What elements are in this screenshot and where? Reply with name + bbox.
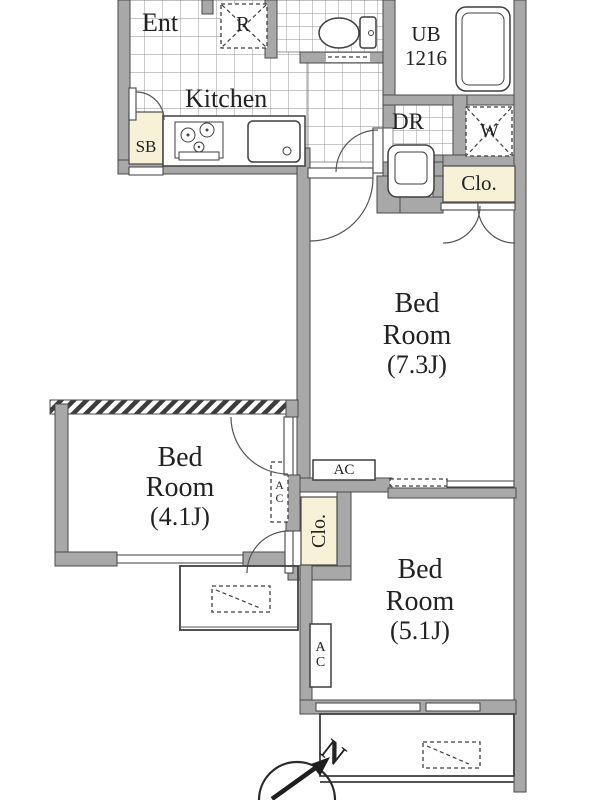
wall-segment [433, 155, 515, 167]
washbasin-inner [395, 152, 427, 184]
closet-door-swing [443, 206, 480, 243]
stove-tray [179, 152, 219, 160]
closet-door-swing [478, 206, 515, 243]
wall-segment [383, 95, 514, 105]
label-unit-bath-line2: 1216 [395, 48, 457, 69]
wall-segment [243, 552, 291, 566]
boundary-wall-hatched [50, 400, 296, 414]
washbasin [388, 145, 434, 197]
label-bedroom1-size: (7.3J) [337, 352, 497, 378]
unit-bath [456, 7, 510, 91]
label-kitchen: Kitchen [185, 86, 267, 112]
hallway-floor [308, 58, 383, 162]
label-ac-bedroom2: AC [272, 479, 287, 505]
bathtub-inner [462, 13, 504, 85]
wall-segment [388, 488, 516, 498]
bedroom1-door-leaf [308, 168, 373, 178]
escape-hatch [423, 742, 480, 768]
bedroom1-door-swing [310, 178, 373, 241]
wall-segment [286, 400, 298, 417]
sink-drain [283, 147, 291, 155]
window [117, 555, 243, 563]
floor-plan: Ent R Kitchen SB UB 1216 DR W Clo. Bed R… [0, 0, 600, 800]
label-ac-bedroom1: AC [313, 463, 375, 478]
label-closet-middle: Clo. [309, 496, 329, 566]
kitchen-sink [248, 121, 300, 162]
burner-dot [198, 146, 200, 148]
closet-door-leaf [478, 203, 515, 210]
escape-hatch [212, 586, 270, 612]
dressing-room-door-leaf [373, 128, 383, 173]
label-dressing-room: DR [392, 110, 424, 133]
label-bedroom1-line1: Bed [337, 290, 497, 318]
bedroom2-door-leaf [284, 417, 293, 475]
wall-segment [55, 404, 68, 566]
burner-dot [206, 129, 209, 132]
entrance-step [129, 167, 163, 175]
toilet-bowl [319, 18, 359, 48]
label-bedroom2-size: (4.1J) [100, 504, 260, 530]
label-refrigerator: R [236, 14, 250, 35]
window-sill-dashed [390, 479, 447, 486]
entry-door-leaf [129, 88, 136, 120]
label-ac-bedroom3: AC [311, 640, 330, 670]
kitchen-fixtures [163, 116, 305, 166]
closet-door-leaf [441, 203, 478, 210]
toilet-button [369, 31, 374, 36]
label-entrance: Ent [142, 10, 178, 36]
label-unit-bath-line1: UB [395, 24, 457, 45]
label-bedroom2-line1: Bed [100, 444, 260, 472]
wall-segment [400, 197, 443, 213]
floor-plan-graphic [0, 0, 600, 800]
window [426, 703, 480, 711]
wall-segment [297, 148, 310, 492]
label-bedroom2-line2: Room [100, 474, 260, 502]
wall-segment [202, 0, 213, 14]
wall-segment [55, 552, 117, 566]
window-sill [447, 481, 514, 487]
label-bedroom3-size: (5.1J) [340, 618, 500, 644]
window [316, 703, 420, 711]
burner-dot [187, 134, 190, 137]
label-washer: W [477, 121, 502, 141]
compass-needle [272, 766, 318, 799]
wall-segment [514, 0, 526, 792]
label-bedroom3-line1: Bed [340, 556, 500, 584]
toilet [319, 17, 376, 62]
wall-segment [453, 95, 467, 157]
label-bedroom1-line2: Room [337, 322, 497, 350]
label-bedroom3-line2: Room [340, 588, 500, 616]
label-shoe-box: SB [129, 138, 163, 155]
label-closet-hall: Clo. [443, 173, 515, 194]
